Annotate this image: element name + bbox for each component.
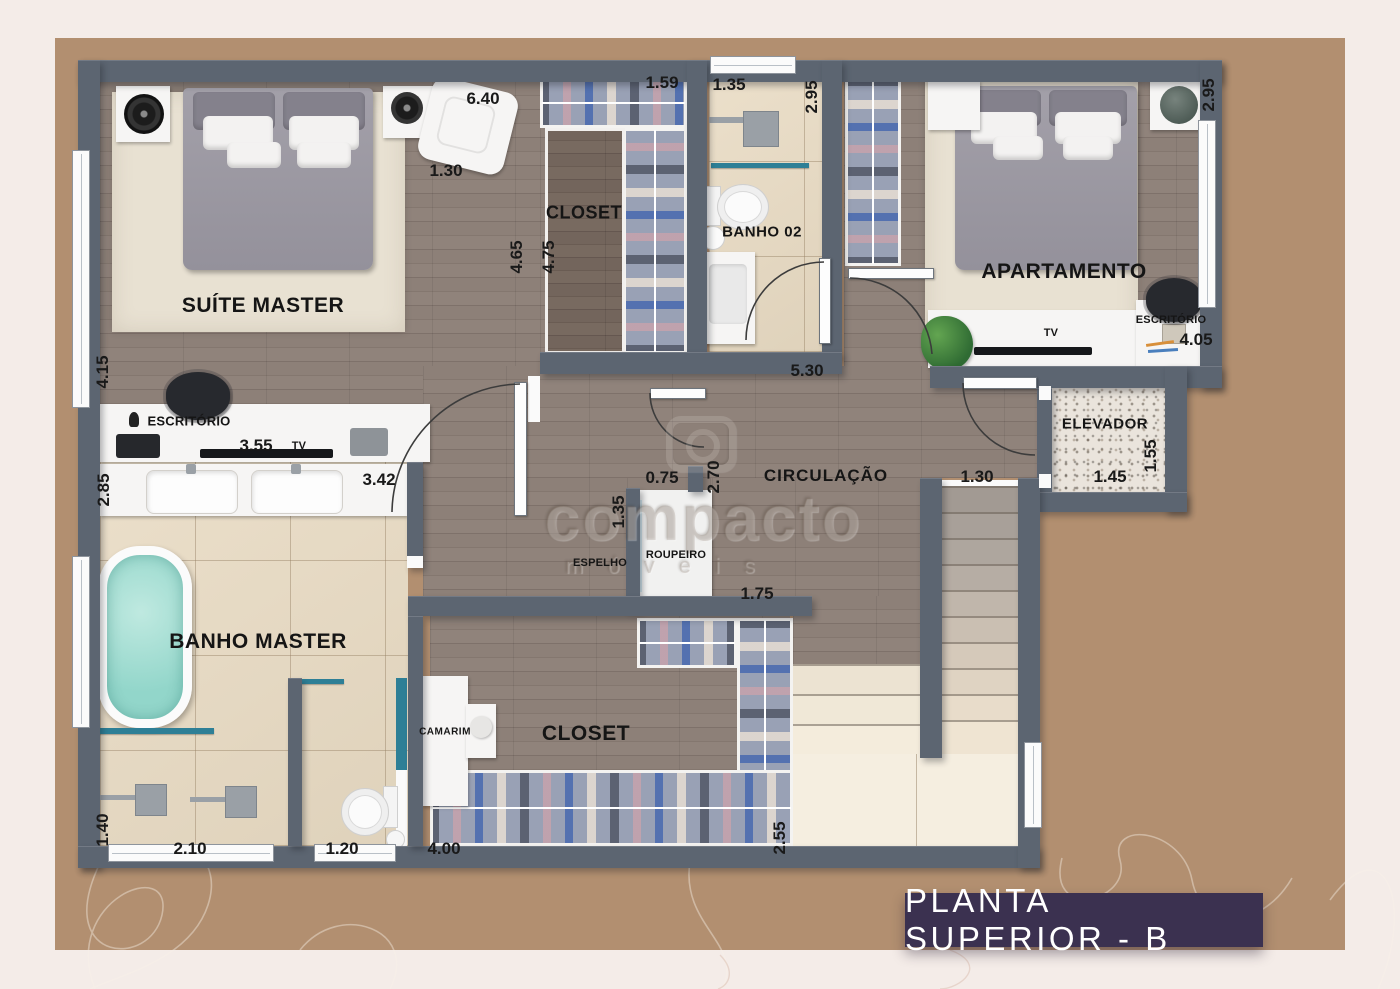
door-leaf-banho-master [650,388,706,399]
stair-step [942,564,1018,592]
glass-shelf [300,679,344,684]
plan-title: PLANTA SUPERIOR - B [905,882,1263,958]
closet-top-rack-east [623,128,687,354]
stair-step [942,694,1018,722]
stair-step [942,590,1018,618]
bed-pillow [993,136,1043,160]
bed-pillow [227,142,281,168]
wall-banho-master-east [407,462,423,568]
elevator-door-frame [1039,474,1051,488]
bed-pillow [297,142,351,168]
dim-elevador-width: 1.45 [1093,467,1126,487]
label-closet-bottom: CLOSET [542,722,630,746]
stair-step [942,538,1018,566]
stair-landing [793,754,1018,846]
window-apartamento-east [1198,120,1216,308]
dim-closet-bottom-depth: 2.55 [770,821,790,854]
sink [146,470,238,514]
dim-roupeiro-left: 1.35 [609,495,629,528]
closet-bottom-rack-south [430,770,793,846]
shower-head-icon [225,786,257,818]
camarim-panel [422,676,468,806]
dim-banho02-depth: 2.95 [802,80,822,113]
wall-stair-west [920,478,942,758]
stair-step [942,642,1018,670]
door-leaf-banho02 [819,258,831,344]
dim-shower-side: 1.40 [93,813,113,846]
door-jamb [528,376,540,422]
speaker-icon [1160,86,1198,124]
apartamento-wardrobe-rack [845,74,901,266]
wall-elevador-south [1037,492,1187,512]
label-escritorio-apartamento: ESCRITÓRIO [1136,314,1206,326]
label-closet-top: CLOSET [546,203,622,224]
camarim-stool [470,716,492,738]
stair-wide-step [793,694,920,726]
watermark-brand: compacto [544,481,862,555]
label-escritorio-suite: ESCRITÓRIO [148,414,231,429]
dim-banho02-width: 1.35 [712,75,745,95]
closet-bottom-rack-north [637,618,737,668]
plant-icon [921,316,973,370]
desk-box [350,428,388,456]
dim-tv-wall: 3.55 [239,436,272,456]
label-el evador: ELEVADOR [1062,416,1148,433]
window-suite-west [72,150,90,408]
dim-vanity-width: 3.42 [362,470,395,490]
banho02-sink [709,264,747,324]
shower-arm [709,117,747,123]
bed-pillow [1063,136,1113,160]
stair-approach-floor [793,596,920,664]
plan-title-banner: PLANTA SUPERIOR - B [905,893,1263,947]
dim-apartamento-depth: 2.95 [1199,78,1219,111]
tv-screen-bar [974,347,1092,355]
label-banho-master: BANHO MASTER [169,630,347,654]
dim-shower-width: 2.10 [173,839,206,859]
label-suite-master: SUÍTE MASTER [182,294,344,318]
door-leaf-suite [514,382,527,516]
stair-step [942,486,1018,514]
speaker-icon [391,92,423,124]
dim-elevador-hall: 1.30 [960,467,993,487]
label-camarim: CAMARIM [419,727,471,738]
dim-vanity-side: 2.85 [94,473,114,506]
glass-shelf [711,163,809,168]
watermark-house-icon [666,416,736,472]
dim-wc-width: 1.20 [325,839,358,859]
window-banho02-north [710,56,796,74]
window-stair-east [1024,742,1042,828]
door-leaf-apartamento [848,268,934,279]
dim-circulacao-width: 5.30 [790,361,823,381]
shower-arm [100,795,136,800]
dim-roupeiro-side: 2.70 [704,460,724,493]
landing-tile-joint [916,754,917,846]
faucet-icon [291,464,301,474]
sink [251,470,343,514]
speaker-icon [124,94,164,134]
wall-elevador-east [1165,366,1187,512]
shower-head-icon [135,784,167,816]
desk-printer [116,434,160,458]
label-tv-apartamento: TV [1044,327,1058,339]
stair-step [942,720,1018,756]
label-roupeiro: ROUPEIRO [646,549,706,561]
label-tv-suite: TV [292,440,306,452]
dim-closet-bottom-width: 4.00 [427,839,460,859]
dim-roupeiro-top: 0.75 [645,468,678,488]
label-circulacao: CIRCULAÇÃO [764,466,888,486]
dim-closet-depth-1: 4.65 [507,240,527,273]
wc-glass-partition [396,678,407,770]
dim-closet-depth-2: 4.75 [539,240,559,273]
dim-suite-width: 6.40 [466,89,499,109]
elevator-door-frame [1039,386,1051,400]
stair-step [942,616,1018,644]
glass-shelf [92,728,214,734]
stair-wide-step [793,664,920,696]
dim-apartamento-width: 4.05 [1179,330,1212,350]
dim-closet-top-width: 1.59 [645,73,678,93]
dim-suite-chair: 1.30 [429,161,462,181]
shower-arm [190,797,226,802]
faucet-icon [186,464,196,474]
label-espelho: ESPELHO [573,557,627,569]
door-leaf-elevador-hall [963,377,1037,389]
wall-wc-west [288,678,302,846]
window-banho-master-west [72,556,90,728]
door-jamb [407,556,423,568]
wall-closet-banho02 [687,60,707,358]
dim-roupeiro-bottom: 1.75 [740,584,773,604]
label-apartamento: APARTAMENTO [981,260,1146,284]
dim-elevador-depth: 1.55 [1141,439,1161,472]
nightstand [928,80,980,130]
stair-step [942,668,1018,696]
dim-suite-side: 4.15 [93,355,113,388]
label-banho02: BANHO 02 [722,224,802,241]
toilet-icon [341,788,389,836]
stair-step [942,512,1018,540]
floor-plan-page: compacto móveis SUÍTE MASTER CLOSET BANH… [0,0,1400,989]
shower-head-icon [743,111,779,147]
desk-lamp-icon [129,412,139,427]
stair-wide-step [793,724,920,756]
